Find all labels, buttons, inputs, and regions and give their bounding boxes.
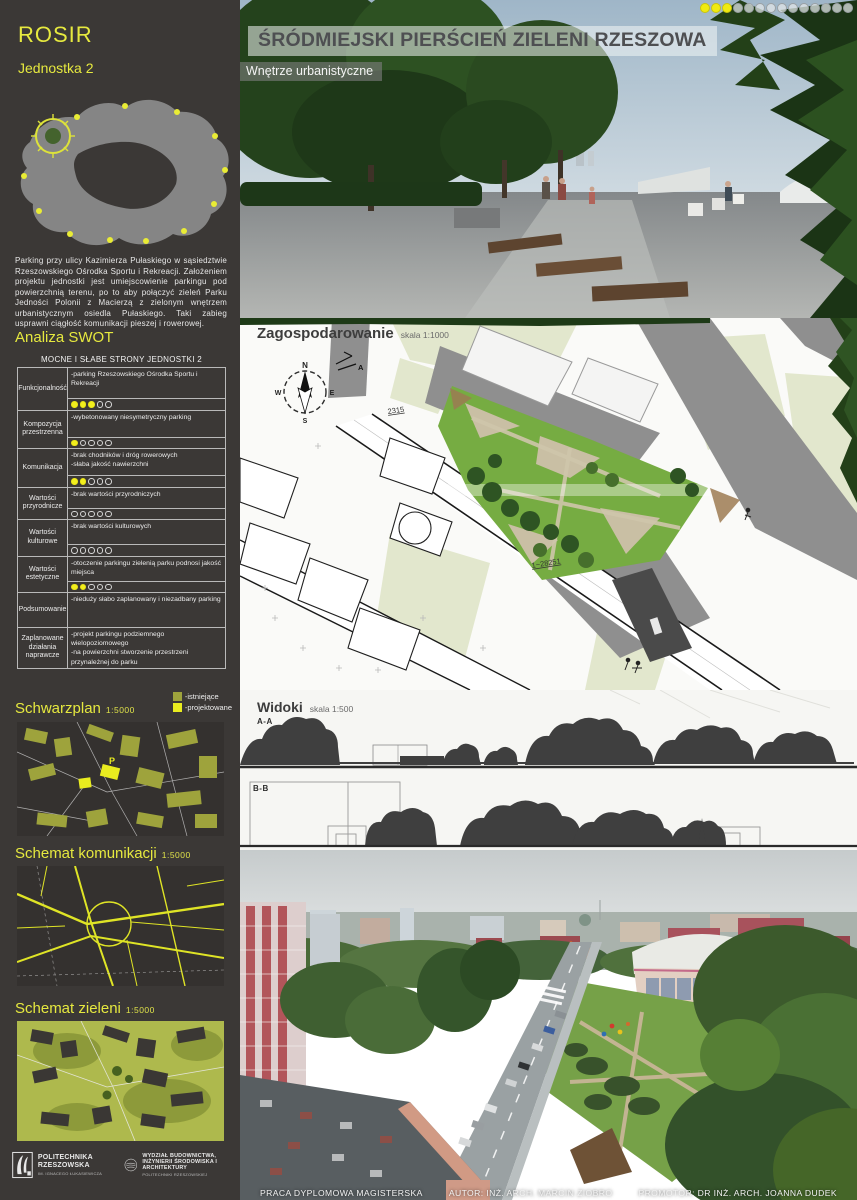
rosir-logo-text: ROSIR: [18, 22, 93, 48]
swot-score-dots: [68, 544, 225, 556]
swot-row-label: Wartości kulturowe: [18, 520, 68, 556]
svg-text:N: N: [302, 361, 308, 370]
swot-score-dots: [68, 475, 225, 487]
swot-table: Funkcjonalność-parking Rzeszowskiego Ośr…: [17, 367, 226, 669]
score-dot: [105, 401, 112, 408]
unit-progress-dots: [700, 3, 853, 13]
swot-score-dots: [68, 581, 225, 593]
swot-row: Wartości przyrodnicze-brak wartości przy…: [18, 488, 225, 521]
wydzial-logo-icon: [124, 1150, 138, 1180]
section-label-aa: A-A: [257, 717, 273, 726]
swot-row-label: Komunikacja: [18, 449, 68, 487]
score-dot: [105, 511, 112, 518]
swot-row-text: -otoczenie parkingu zielenią parku podno…: [68, 557, 225, 581]
swot-row-text: -parking Rzeszowskiego Ośrodka Sportu i …: [68, 368, 225, 398]
schwarzplan-map: P: [17, 722, 224, 836]
score-dot: [71, 584, 78, 591]
swot-heading: Analiza SWOT: [15, 329, 113, 346]
score-dot: [97, 547, 104, 554]
wydzial-logo: WYDZIAŁ BUDOWNICTWA, INŻYNIERII ŚRODOWIS…: [124, 1150, 232, 1180]
legend-planned-label: -projektowane: [185, 703, 232, 712]
swot-analysis: MOCNE I SŁABE STRONY JEDNOSTKI 2 Funkcjo…: [17, 355, 226, 669]
swot-score-dots: [68, 508, 225, 520]
swot-row: Wartości kulturowe-brak wartości kulturo…: [18, 520, 225, 557]
score-dot: [88, 440, 95, 447]
swot-row-text: -brak chodników i dróg rowerowych -słaba…: [68, 449, 225, 475]
score-dot: [105, 584, 112, 591]
progress-dot: [777, 3, 787, 13]
swot-row-label: Zaplanowane działania naprawcze: [18, 628, 68, 668]
score-dot: [80, 440, 87, 447]
schemat-zieleni-map: [17, 1021, 224, 1141]
footer-project: PRACA DYPLOMOWA MAGISTERSKA: [260, 1188, 423, 1198]
map-legend: -istniejące -projektowane: [173, 692, 232, 714]
score-dot: [88, 547, 95, 554]
poster-board: ROSIR Jednostka 2 Parking prz: [0, 0, 857, 1200]
swot-row: Podsumowanie-nieduży słabo zaplanowany i…: [18, 593, 225, 628]
swot-row-label: Podsumowanie: [18, 593, 68, 627]
score-dot: [80, 547, 87, 554]
score-dot: [97, 440, 104, 447]
schemat-komunikacji-heading: Schemat komunikacji1:5000: [15, 845, 191, 862]
progress-dot: [744, 3, 754, 13]
score-dot: [97, 401, 104, 408]
section-label-bb: B-B: [253, 784, 269, 793]
swot-row-label: Kompozycja przestrzenna: [18, 411, 68, 449]
swot-row: Kompozycja przestrzenna-wybetonowany nie…: [18, 411, 225, 450]
score-dot: [80, 401, 87, 408]
svg-text:A: A: [358, 363, 364, 372]
score-dot: [80, 511, 87, 518]
swot-row-label: Funkcjonalność: [18, 368, 68, 410]
progress-dot: [821, 3, 831, 13]
legend-existing-label: -istniejące: [185, 692, 219, 701]
unit-location-map: [6, 84, 234, 252]
swot-row: Komunikacja-brak chodników i dróg rowero…: [18, 449, 225, 488]
site-plan-graphic: N E S W A 2315: [240, 318, 857, 690]
swot-row-text: -brak wartości kulturowych: [68, 520, 225, 544]
score-dot: [71, 401, 78, 408]
unit-description: Parking przy ulicy Kazimierza Pułaskiego…: [15, 256, 227, 330]
svg-text:S: S: [303, 418, 308, 425]
credits-footer: PRACA DYPLOMOWA MAGISTERSKA AUTOR: INŻ. …: [240, 1188, 857, 1198]
politechnika-logo-icon: [12, 1146, 33, 1184]
unit-label: Jednostka 2: [18, 60, 94, 76]
swot-row: Zaplanowane działania naprawcze-projekt …: [18, 628, 225, 668]
schemat-zieleni-heading: Schemat zieleni1:5000: [15, 1000, 155, 1017]
score-dot: [97, 584, 104, 591]
swot-table-title: MOCNE I SŁABE STRONY JEDNOSTKI 2: [17, 355, 226, 364]
score-dot: [88, 584, 95, 591]
svg-text:E: E: [330, 390, 335, 397]
swot-score-dots: [68, 398, 225, 410]
swot-row-text: -nieduży słabo zaplanowany i niezadbany …: [68, 593, 225, 627]
swot-row: Funkcjonalność-parking Rzeszowskiego Ośr…: [18, 368, 225, 411]
score-dot: [97, 478, 104, 485]
poster-title: ŚRÓDMIEJSKI PIERŚCIEŃ ZIELENI RZESZOWA: [248, 26, 717, 56]
score-dot: [105, 478, 112, 485]
score-dot: [88, 511, 95, 518]
site-plan: N E S W A 2315: [240, 318, 857, 690]
views-heading: Widokiskala 1:500: [257, 699, 353, 715]
swot-row-text: -brak wartości przyrodniczych: [68, 488, 225, 508]
score-dot: [88, 478, 95, 485]
progress-dot: [700, 3, 710, 13]
swot-row-text: -wybetonowany niesymetryczny parking: [68, 411, 225, 437]
swot-row-label: Wartości estetyczne: [18, 557, 68, 593]
score-dot: [71, 547, 78, 554]
progress-dot: [832, 3, 842, 13]
score-dot: [80, 584, 87, 591]
aerial-photo: PRACA DYPLOMOWA MAGISTERSKA AUTOR: INŻ. …: [240, 850, 857, 1200]
legend-planned-swatch: [173, 703, 182, 712]
progress-dot: [755, 3, 765, 13]
score-dot: [105, 547, 112, 554]
main-content: ŚRÓDMIEJSKI PIERŚCIEŃ ZIELENI RZESZOWA W…: [240, 0, 857, 1200]
aerial-photo-graphic: [240, 850, 857, 1200]
score-dot: [97, 511, 104, 518]
schemat-komunikacji-map: [17, 866, 224, 986]
institution-logos: POLITECHNIKA RZESZOWSKA IM. IGNACEGO ŁUK…: [12, 1146, 232, 1184]
swot-score-dots: [68, 437, 225, 449]
progress-dot: [810, 3, 820, 13]
swot-row-text: -projekt parkingu podziemnego wielopozio…: [68, 628, 225, 668]
poster-subtitle: Wnętrze urbanistyczne: [240, 62, 382, 81]
svg-text:P: P: [109, 756, 115, 766]
progress-dot: [843, 3, 853, 13]
score-dot: [80, 478, 87, 485]
progress-dot: [722, 3, 732, 13]
score-dot: [88, 401, 95, 408]
progress-dot: [733, 3, 743, 13]
progress-dot: [711, 3, 721, 13]
legend-existing-swatch: [173, 692, 182, 701]
section-views: Widokiskala 1:500 A-A B-B: [240, 690, 857, 850]
progress-dot: [799, 3, 809, 13]
svg-text:W: W: [275, 390, 282, 397]
score-dot: [71, 478, 78, 485]
progress-dot: [788, 3, 798, 13]
footer-promoter: PROMOTOR: DR INŻ. ARCH. JOANNA DUDEK: [638, 1188, 837, 1198]
schwarzplan-heading: Schwarzplan1:5000: [15, 700, 135, 717]
progress-dot: [766, 3, 776, 13]
sidebar: ROSIR Jednostka 2 Parking prz: [0, 0, 240, 1200]
footer-author: AUTOR: INŻ. ARCH. MARCIN ZIOBRO: [449, 1188, 613, 1198]
swot-row: Wartości estetyczne-otoczenie parkingu z…: [18, 557, 225, 594]
score-dot: [71, 440, 78, 447]
score-dot: [71, 511, 78, 518]
park-render-image: ŚRÓDMIEJSKI PIERŚCIEŃ ZIELENI RZESZOWA W…: [240, 0, 857, 318]
score-dot: [105, 440, 112, 447]
swot-row-label: Wartości przyrodnicze: [18, 488, 68, 520]
plan-heading: Zagospodarowanieskala 1:1000: [257, 325, 449, 342]
politechnika-logo: POLITECHNIKA RZESZOWSKA IM. IGNACEGO ŁUK…: [12, 1146, 114, 1184]
